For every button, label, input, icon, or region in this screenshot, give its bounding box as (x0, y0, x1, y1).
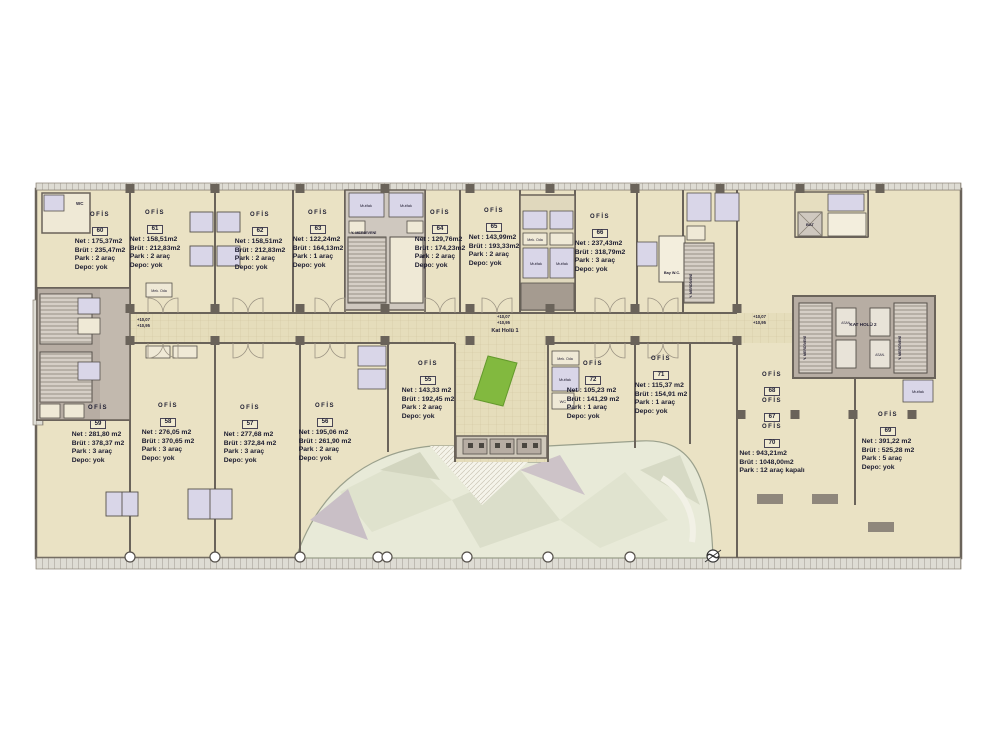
office-title: OFİS (120, 210, 190, 217)
elevator-label: ASAN. (875, 353, 885, 357)
office-park: Park : 2 araç (402, 404, 455, 413)
office-brut: Brüt : 378,37 m2 (72, 440, 125, 449)
office-park: Park : 2 araç (235, 255, 286, 264)
stair-label: Y. MERDİVENİ (898, 336, 902, 360)
office-brut: Brüt : 193,33m2 (469, 243, 520, 252)
office-brut: Brüt : 372,84 m2 (224, 440, 277, 449)
floor-plan: WC Y. MERDİVENİ Mutfak Mutfak Mek. Oda M… (0, 0, 1000, 750)
office-label-59: OFİS59Net : 281,80 m2Brüt : 378,37 m2Par… (63, 405, 133, 465)
office-label-63: OFİS63Net : 122,24m2Brüt : 164,13m2Park … (283, 210, 353, 270)
office-net: Net : 237,43m2 (575, 240, 626, 249)
office-net: Net : 281,80 m2 (72, 431, 125, 440)
office-park: Park : 1 araç (293, 253, 344, 262)
room-label-mutfak: Mutfak (912, 389, 924, 394)
office-depo: Depo: yok (635, 408, 688, 417)
office-number: 66 (592, 229, 609, 238)
top-right-core: BAT (795, 192, 868, 237)
office-label-58: OFİS58Net : 276,05 m2Brüt : 370,65 m2Par… (133, 403, 203, 463)
office-park: Park : 12 araç kapalı (739, 467, 804, 476)
entrance-turnstiles (456, 436, 547, 458)
office-brut: Brüt : 141,29 m2 (567, 396, 620, 405)
room-label-mutfak: Mutfak (360, 203, 372, 208)
office-number: 65 (486, 223, 503, 232)
elevator-label: ASAN. (841, 321, 851, 325)
office-title: OFİS (565, 214, 635, 221)
office-brut: Brüt : 318,79m2 (575, 249, 626, 258)
svg-text:+10,07: +10,07 (137, 317, 151, 322)
office-depo: Depo: yok (299, 455, 352, 464)
office-net: Net : 277,68 m2 (224, 431, 277, 440)
office-net: Net : 143,99m2 (469, 234, 520, 243)
office-brut: Brüt : 370,65 m2 (142, 438, 195, 447)
svg-text:+10,95: +10,95 (753, 320, 767, 325)
office-net: Net : 943,21m2 (739, 450, 804, 459)
office-depo: Depo: yok (75, 264, 126, 273)
office-net: Net : 158,51m2 (235, 238, 286, 247)
office-number: 59 (90, 420, 107, 429)
office-label-55: OFİS55Net : 143,33 m2Brüt : 192,45 m2Par… (393, 361, 463, 421)
office-net: Net : 143,33 m2 (402, 387, 455, 396)
stair-label: Y. MERDİVENİ (351, 231, 376, 235)
room-label-mutfak: Mutfak (530, 261, 542, 266)
stair-label: Y. MERDİVENİ (689, 274, 693, 298)
office-park: Park : 2 araç (469, 251, 520, 260)
office-title: OFİS (737, 372, 807, 379)
room-label-bat: BAT (806, 222, 814, 227)
office-number: 67 (764, 413, 781, 422)
office-title: OFİS (133, 403, 203, 410)
office-label-61: OFİS61Net : 158,51m2Brüt : 212,83m2Park … (120, 210, 190, 270)
office-number: 58 (160, 418, 177, 427)
office-depo: Depo: yok (469, 260, 520, 269)
room-label-mek-oda: Mek. Oda (151, 289, 167, 293)
office-title: OFİS (63, 405, 133, 412)
office-park: Park : 3 araç (142, 446, 195, 455)
office-label-66: OFİS66Net : 237,43m2Brüt : 318,79m2Park … (565, 214, 635, 274)
office-park: Park : 2 araç (75, 255, 126, 264)
office-title: OFİS (737, 424, 807, 431)
office-number: 72 (585, 376, 602, 385)
svg-text:+10,07: +10,07 (497, 314, 511, 319)
office-brut: Brüt : 192,45 m2 (402, 396, 455, 405)
office-label-71: OFİS71Net : 115,37 m2Brüt : 154,91 m2Par… (626, 356, 696, 416)
office-net: Net : 391,22 m2 (862, 438, 915, 447)
office-park: Park : 1 araç (635, 399, 688, 408)
office-depo: Depo: yok (862, 464, 915, 473)
office-brut: Brüt : 174,23m2 (415, 245, 466, 254)
room-label-wc: WC (76, 201, 84, 206)
office-number: 69 (880, 427, 897, 436)
office-brut: Brüt : 212,83m2 (235, 247, 286, 256)
svg-text:+10,07: +10,07 (753, 314, 767, 319)
office-brut: Brüt : 1048,00m2 (739, 459, 804, 468)
office-net: Net : 175,37m2 (75, 238, 126, 247)
office-number: 71 (653, 371, 670, 380)
office-number: 70 (764, 439, 781, 448)
office-net: Net : 122,24m2 (293, 236, 344, 245)
office-number: 57 (242, 420, 259, 429)
office-net: Net : 276,05 m2 (142, 429, 195, 438)
office-title: OFİS (393, 361, 463, 368)
office-depo: Depo: yok (415, 262, 466, 271)
office-depo: Depo: yok (293, 262, 344, 271)
office-park: Park : 3 araç (224, 448, 277, 457)
office-title: OFİS (737, 398, 807, 405)
office-title: OFİS (283, 210, 353, 217)
office-label-65: OFİS65Net : 143,99m2Brüt : 193,33m2Park … (459, 208, 529, 268)
office-depo: Depo: yok (567, 413, 620, 422)
stair-label: Y. MERDİVENİ (803, 336, 807, 360)
office-brut: Brüt : 154,91 m2 (635, 391, 688, 400)
office-label-56: OFİS56Net : 195,06 m2Brüt : 261,90 m2Par… (290, 403, 360, 463)
office-label-57: OFİS57Net : 277,68 m2Brüt : 372,84 m2Par… (215, 405, 285, 465)
office-label-72: OFİS72Net : 105,23 m2Brüt : 141,29 m2Par… (558, 361, 628, 421)
office-park: Park : 3 araç (72, 448, 125, 457)
svg-text:+10,95: +10,95 (497, 320, 511, 325)
floor-plan-drawing: WC Y. MERDİVENİ Mutfak Mutfak Mek. Oda M… (0, 0, 1000, 750)
office-brut: Brüt : 212,83m2 (130, 245, 181, 254)
office-depo: Depo: yok (72, 457, 125, 466)
office-number: 63 (310, 225, 327, 234)
office-depo: Depo: yok (130, 262, 181, 271)
office-title: OFİS (626, 356, 696, 363)
office-title: OFİS (558, 361, 628, 368)
office-number: 60 (92, 227, 109, 236)
office-park: Park : 3 araç (575, 257, 626, 266)
office-net: Net : 158,51m2 (130, 236, 181, 245)
office-number: 68 (764, 387, 781, 396)
office-net: Net : 115,37 m2 (635, 382, 688, 391)
office-depo: Depo: yok (142, 455, 195, 464)
room-label-bay-wc: Bay W.C. (664, 271, 680, 275)
office-net: Net : 195,06 m2 (299, 429, 352, 438)
office-brut: Brüt : 525,28 m2 (862, 447, 915, 456)
office-number: 64 (432, 225, 449, 234)
office-title: OFİS (215, 405, 285, 412)
office-park: Park : 1 araç (567, 404, 620, 413)
office-brut: Brüt : 164,13m2 (293, 245, 344, 254)
office-park: Park : 5 araç (862, 455, 915, 464)
office-title: OFİS (290, 403, 360, 410)
office-number: 61 (147, 225, 164, 234)
office-park: Park : 2 araç (415, 253, 466, 262)
office-number: 56 (317, 418, 334, 427)
office-brut: Brüt : 235,47m2 (75, 247, 126, 256)
office-number: 55 (420, 376, 437, 385)
office-park: Park : 2 araç (130, 253, 181, 262)
office-label-69: OFİS69Net : 391,22 m2Brüt : 525,28 m2Par… (853, 412, 923, 472)
office-depo: Depo: yok (575, 266, 626, 275)
office-title: OFİS (853, 412, 923, 419)
svg-text:+10,95: +10,95 (137, 323, 151, 328)
office-net: Net : 105,23 m2 (567, 387, 620, 396)
office-net: Net : 129,76m2 (415, 236, 466, 245)
room-label-mutfak: Mutfak (400, 203, 412, 208)
office-depo: Depo: yok (224, 457, 277, 466)
office-brut: Brüt : 261,90 m2 (299, 438, 352, 447)
office-number: 62 (252, 227, 269, 236)
hall2-label: KAT HOLÜ 2 (849, 321, 877, 327)
office-label-68-67-70: OFİS 68 OFİS 67 OFİS 70 Net : 943,21m2 B… (737, 372, 807, 476)
room-label-mek-oda: Mek. Oda (527, 238, 543, 242)
office-depo: Depo: yok (235, 264, 286, 273)
office-title: OFİS (459, 208, 529, 215)
hall1-label: Kat Holü 1 (491, 328, 518, 334)
office-park: Park : 2 araç (299, 446, 352, 455)
office-depo: Depo: yok (402, 413, 455, 422)
left-stair-core (37, 288, 130, 420)
